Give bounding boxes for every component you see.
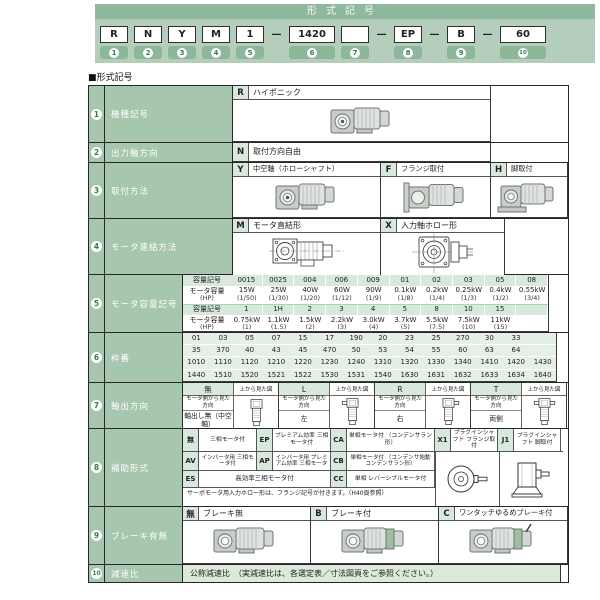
capacity-code: 4 — [358, 305, 390, 316]
capacity-code: 8 — [421, 305, 453, 316]
row-number-cell: 8 — [89, 429, 105, 506]
badge-number: 2 — [143, 48, 153, 58]
code-box: 1420 — [289, 26, 335, 43]
table-row-7: 7 軸出方向 無 上から見た図 モータ側から見た方向 軸出し無（中空軸） L 上… — [89, 382, 568, 428]
badge-number: 3 — [177, 48, 187, 58]
code-box-slot-10: 60 10 — [500, 26, 546, 59]
code-box: 1 — [236, 26, 264, 43]
row-label: 軸出方向 — [105, 383, 183, 428]
table-row-2: 2 出力軸方向 N 取付方向自由 — [89, 142, 568, 162]
shaft-direction-option-R: R 上から見た図 モータ側から見た方向 右 — [375, 383, 471, 428]
capacity-value: 0.25kW(1/3) — [453, 286, 485, 304]
capacity-value — [516, 323, 548, 326]
page-title: 形式記号 — [95, 4, 595, 19]
top-view-drawing — [233, 396, 278, 429]
top-view-label: 上から見た図 — [425, 383, 470, 396]
capacity-code: 02 — [421, 275, 453, 286]
capacity-code-row: 容量記号11H234581015 — [183, 304, 548, 316]
row-number-cell: 2 — [89, 143, 105, 162]
motor-side-view-label: モータ側から見た方向 — [375, 396, 425, 411]
aux-description: プレミアム効率 三相モータ付 — [273, 429, 331, 451]
row-content: 無 上から見た図 モータ側から見た方向 軸出し無（中空軸） L 上から見た図 モ… — [183, 383, 568, 428]
frame-number: 07 — [263, 333, 290, 344]
option-box: Y 中空軸（ホローシャフト） — [233, 163, 381, 218]
code-cell: R — [233, 86, 249, 99]
code-cell: 無 — [183, 507, 199, 520]
option-box: X 入力軸ホロー形 — [381, 219, 505, 274]
aux-code: CC — [331, 471, 347, 487]
frame-number: 35 — [183, 345, 210, 356]
capacity-code: 1H — [263, 305, 295, 316]
frame-number: 1634 — [503, 370, 530, 381]
row-number-badge: 6 — [91, 352, 102, 363]
dash-glyph: — — [428, 26, 441, 43]
frame-number: 1531 — [343, 370, 370, 381]
table-row-10: 10 減速比 公称減速比 （実減速比は、各選定表／寸法図頁をご参照ください。） — [89, 564, 568, 582]
row-label: 機種記号 — [105, 86, 233, 142]
table-row-4: 4 モータ連結方法 M モータ直結形 X 入力軸ホロー形 — [89, 218, 568, 274]
capacity-value: 3.7kW(5) — [390, 315, 422, 333]
shaft-direction-table: 無 上から見た図 モータ側から見た方向 軸出し無（中空軸） L 上から見た図 モ… — [183, 383, 567, 428]
row-number-badge: 10 — [91, 568, 102, 579]
top-view-drawing — [329, 396, 374, 428]
code-cell: B — [311, 507, 327, 520]
direction-value: 左 — [279, 411, 329, 428]
code-number-badge: 3 — [168, 46, 196, 59]
option-box: B ブレーキ付 — [311, 507, 439, 564]
capacity-value: 7.5kW(10) — [453, 315, 485, 333]
aux-line-1: 無三相モータ付EPプレミアム効率 三相モータ付CA単相モータ付 （コンデンサラン… — [183, 429, 563, 452]
code-description: ブレーキ無 — [199, 507, 247, 520]
aux-line-2: AVインバータ用 三相モータ付APインバータ用 プレミアム効率 三相モータCB単… — [183, 452, 435, 471]
code-description: フランジ取付 — [397, 163, 448, 176]
frame-number: 25 — [423, 333, 450, 344]
row-content: N 取付方向自由 — [233, 143, 568, 162]
badge-number: 1 — [109, 48, 119, 58]
motor-capacity-table: 容量記号001500250040060090102030508モータ容量(HP)… — [183, 275, 549, 332]
table-row-8: 8 補助形式 無三相モータ付EPプレミアム効率 三相モータ付CA単相モータ付 （… — [89, 428, 568, 506]
frame-number: 1220 — [290, 357, 317, 368]
aux-line-3: ES高効率三相モータ付CC単相 レバーシブルモータ付 — [183, 471, 435, 488]
frame-number: 1420 — [503, 357, 530, 368]
direction-value: 右 — [375, 411, 425, 428]
frame-number-row: 3537040434547050535455606364 — [183, 344, 556, 356]
row-label: 出力軸方向 — [105, 143, 233, 162]
gearmotor-photo — [233, 177, 380, 217]
table-row-6: 6 枠番 01030507151719020232527030333537040… — [89, 332, 568, 382]
aux-code: X1 — [435, 429, 451, 451]
code-number-badge: 1 — [100, 46, 128, 59]
aux-code: CB — [331, 452, 347, 470]
row-content: 0103050715171902023252703033353704043454… — [183, 333, 568, 382]
frame-number: 43 — [263, 345, 290, 356]
badge-number: 4 — [211, 48, 221, 58]
code-separator: — — [428, 26, 441, 43]
frame-number: 1210 — [263, 357, 290, 368]
code-separator: — — [481, 26, 494, 43]
code-cell: H — [491, 163, 507, 176]
aux-left-block: AVインバータ用 三相モータ付APインバータ用 プレミアム効率 三相モータCB単… — [183, 452, 435, 506]
capacity-code: 009 — [358, 275, 390, 286]
code-description: 脚取付 — [507, 163, 537, 176]
frame-number: 30 — [476, 333, 503, 344]
aux-code: J1 — [498, 429, 514, 451]
option-box: 無 ブレーキ無 — [183, 507, 311, 564]
capacity-code: 1 — [231, 305, 263, 316]
frame-number — [529, 333, 556, 344]
reduction-ratio-note: 公称減速比 （実減速比は、各選定表／寸法図頁をご参照ください。） — [183, 565, 561, 582]
top-view-drawing — [521, 396, 566, 428]
plug-in-shaft-flange-drawing — [435, 452, 499, 506]
code-box-slot-6: 1420 6 — [289, 26, 335, 59]
code-description: 入力軸ホロー形 — [397, 219, 461, 232]
frame-number: 33 — [503, 333, 530, 344]
code-number-badge: 10 — [500, 46, 546, 59]
frame-number: 1631 — [423, 370, 450, 381]
frame-number: 1520 — [236, 370, 263, 381]
capacity-value: 11kW(15) — [485, 315, 517, 333]
option-box: C ワンタッチゆるめブレーキ付 — [439, 507, 568, 564]
motor-side-view-label: モータ側から見た方向 — [183, 396, 233, 411]
row-number-badge: 8 — [91, 462, 102, 473]
capacity-value-header: モータ容量(HP) — [183, 286, 231, 303]
code-cell: M — [233, 219, 249, 232]
frame-number: 53 — [369, 345, 396, 356]
capacity-code-header: 容量記号 — [183, 275, 231, 286]
gearmotor-line-drawing — [233, 233, 380, 277]
option-header: Y 中空軸（ホローシャフト） — [233, 163, 380, 177]
frame-number: 1521 — [263, 370, 290, 381]
badge-number: 8 — [403, 48, 413, 58]
frame-number: 50 — [343, 345, 370, 356]
row-number-cell: 7 — [89, 383, 105, 428]
frame-number: 1010 — [183, 357, 210, 368]
frame-number: 1522 — [290, 370, 317, 381]
frame-number: 64 — [503, 345, 530, 356]
code-box-slot-8: EP 8 — [394, 26, 422, 59]
badge-number: 9 — [456, 48, 466, 58]
frame-number: 15 — [290, 333, 317, 344]
motor-side-view-label: モータ側から見た方向 — [279, 396, 329, 411]
frame-number: 1340 — [449, 357, 476, 368]
code-box: B — [447, 26, 475, 43]
option-header: C ワンタッチゆるめブレーキ付 — [439, 507, 567, 521]
capacity-value-row: モータ容量(HP)15W(1/50)25W(1/30)40W(1/20)60W(… — [183, 286, 548, 304]
frame-number-row: 1440151015201521152215301531154016301631… — [183, 369, 556, 381]
capacity-code-row: 容量記号001500250040060090102030508 — [183, 275, 548, 286]
aux-description: 単相モータ付 （コンデンサ始動コンデンサラン形） — [347, 452, 435, 470]
capacity-value: 0.4kW(1/2) — [485, 286, 517, 304]
option-header: N 取付方向自由 — [233, 143, 490, 161]
row-content: 無 ブレーキ無 B ブレーキ付 C ワンタッチゆるめブレーキ付 — [183, 507, 568, 564]
option-header: 無 ブレーキ無 — [183, 507, 310, 521]
code-number-badge: 6 — [289, 46, 335, 59]
row-number-badge: 3 — [91, 185, 102, 196]
frame-number: 1440 — [183, 370, 210, 381]
code-box-slot-2: N 2 — [134, 26, 162, 59]
aux-description: インバータ用 三相モータ付 — [199, 452, 257, 470]
frame-number: 1633 — [476, 370, 503, 381]
aux-region: AVインバータ用 三相モータ付APインバータ用 プレミアム効率 三相モータCB単… — [183, 452, 563, 506]
frame-number: 1230 — [316, 357, 343, 368]
code-box: M — [202, 26, 230, 43]
row-number-cell: 4 — [89, 219, 105, 274]
code-separator: — — [375, 26, 388, 43]
frame-number: 60 — [449, 345, 476, 356]
gearmotor-line-drawing — [381, 233, 504, 277]
option-header: X 入力軸ホロー形 — [381, 219, 504, 233]
capacity-value-row: モータ容量(HP)0.75kW(1)1.1kW(1.5)1.5kW(2)2.2k… — [183, 315, 548, 333]
capacity-code: 0025 — [263, 275, 295, 286]
direction-code: T — [471, 383, 521, 396]
top-view-label: 上から見た図 — [329, 383, 374, 396]
capacity-code: 004 — [294, 275, 326, 286]
code-box-slot-4: M 4 — [202, 26, 230, 59]
table-row-5: 5 モータ容量記号 容量記号00150025004006009010203050… — [89, 274, 568, 332]
code-cell: C — [439, 507, 455, 520]
option-box: R ハイポニック — [233, 86, 491, 142]
direction-value: 軸出し無（中空軸） — [183, 411, 233, 429]
aux-description: 単相 レバーシブルモータ付 — [347, 471, 435, 487]
capacity-code: 10 — [453, 305, 485, 316]
frame-number: 45 — [290, 345, 317, 356]
row-number-cell: 1 — [89, 86, 105, 142]
aux-description: 単相モータ付 （コンデンサラン形） — [347, 429, 435, 451]
shaft-direction-option-T: T 上から見た図 モータ側から見た方向 両側 — [471, 383, 567, 428]
code-description: ワンタッチゆるめブレーキ付 — [455, 507, 556, 520]
gearmotor-photo — [183, 521, 310, 563]
row-content: 容量記号001500250040060090102030508モータ容量(HP)… — [183, 275, 568, 332]
dash-glyph: — — [481, 26, 494, 43]
frame-number: 54 — [396, 345, 423, 356]
capacity-code: 01 — [390, 275, 422, 286]
option-header: H 脚取付 — [491, 163, 567, 177]
code-description: 中空軸（ホローシャフト） — [249, 163, 343, 176]
direction-code: 無 — [183, 383, 233, 396]
capacity-value: 0.2kW(1/4) — [421, 286, 453, 304]
code-description: ハイポニック — [249, 86, 305, 99]
frame-number: 1630 — [396, 370, 423, 381]
code-box-slot-3: Y 3 — [168, 26, 196, 59]
frame-number: 1240 — [343, 357, 370, 368]
dash-glyph: — — [375, 26, 388, 43]
gearmotor-photo — [491, 177, 567, 217]
badge-number: 7 — [350, 48, 360, 58]
code-number-badge: 8 — [394, 46, 422, 59]
badge-number: 10 — [518, 48, 528, 58]
option-box: H 脚取付 — [491, 163, 568, 218]
option-header: F フランジ取付 — [381, 163, 490, 177]
row-number-cell: 3 — [89, 163, 105, 218]
frame-number: 1410 — [476, 357, 503, 368]
frame-number: 1510 — [210, 370, 237, 381]
direction-value: 両側 — [471, 411, 521, 428]
capacity-code: 0015 — [231, 275, 263, 286]
direction-code: R — [375, 383, 425, 396]
frame-number-row: 1010111011201210122012301240131013201330… — [183, 356, 556, 368]
frame-number-row: 0103050715171902023252703033 — [183, 333, 556, 344]
code-separator: — — [270, 26, 283, 43]
frame-number: 63 — [476, 345, 503, 356]
plug-in-shaft-foot-drawing — [499, 452, 563, 506]
motor-side-view-label: モータ側から見た方向 — [471, 396, 521, 411]
code-cell: X — [381, 219, 397, 232]
capacity-code: 05 — [485, 275, 517, 286]
row-label: ブレーキ有無 — [105, 507, 183, 564]
code-description: モータ直結形 — [249, 219, 305, 232]
model-code-table: 1 機種記号 R ハイポニック 2 出力軸方向 N — [88, 85, 569, 583]
row-content: 公称減速比 （実減速比は、各選定表／寸法図頁をご参照ください。） — [183, 565, 568, 582]
code-box: 60 — [500, 26, 546, 43]
row-content: 無三相モータ付EPプレミアム効率 三相モータ付CA単相モータ付 （コンデンサラン… — [183, 429, 568, 506]
option-header: M モータ直結形 — [233, 219, 380, 233]
frame-number: 370 — [210, 345, 237, 356]
code-number-badge: 4 — [202, 46, 230, 59]
row-number-badge: 5 — [91, 298, 102, 309]
code-box: EP — [394, 26, 422, 43]
capacity-code — [516, 305, 548, 316]
capacity-code: 3 — [326, 305, 358, 316]
row-number-badge: 7 — [91, 400, 102, 411]
code-number-badge: 9 — [447, 46, 475, 59]
row-number-cell: 5 — [89, 275, 105, 332]
aux-image-block — [435, 452, 563, 506]
row-label: モータ連結方法 — [105, 219, 233, 274]
badge-number: 5 — [245, 48, 255, 58]
capacity-code: 08 — [516, 275, 548, 286]
aux-code: CA — [331, 429, 347, 451]
code-cell: N — [233, 143, 249, 161]
option-header: B ブレーキ付 — [311, 507, 438, 521]
frame-number: 05 — [236, 333, 263, 344]
capacity-value-header: モータ容量(HP) — [183, 316, 231, 333]
code-cell: F — [381, 163, 397, 176]
gearmotor-photo — [381, 177, 490, 217]
gearmotor-photo — [311, 521, 438, 563]
aux-description: プラグインシャフト 脚取付 — [514, 429, 561, 451]
top-view-label: 上から見た図 — [233, 383, 278, 396]
capacity-value: 0.55kW(3/4) — [516, 286, 548, 304]
frame-number: 1530 — [316, 370, 343, 381]
aux-code: ES — [183, 471, 199, 487]
aux-code: AP — [257, 452, 273, 470]
code-description: 取付方向自由 — [249, 143, 305, 161]
model-code-boxes: R 1 N 2 Y 3 M 4 1 5 — 1420 6 7 — EP — [95, 19, 595, 63]
code-description: ブレーキ付 — [327, 507, 375, 520]
shaft-direction-option-無: 無 上から見た図 モータ側から見た方向 軸出し無（中空軸） — [183, 383, 279, 428]
capacity-value: 90W(1/9) — [358, 286, 390, 304]
capacity-value: 60W(1/12) — [326, 286, 358, 304]
frame-number: 270 — [449, 333, 476, 344]
aux-description: 三相モータ付 — [199, 429, 257, 451]
aux-note: サーボモータ用入力ホロー形は、フランジ記号が付きます。（H40頁参照） — [183, 488, 435, 500]
option-box: N 取付方向自由 — [233, 143, 491, 162]
code-box-slot-9: B 9 — [447, 26, 475, 59]
capacity-value: 40W(1/20) — [294, 286, 326, 304]
aux-code: 無 — [183, 429, 199, 451]
frame-number — [529, 345, 556, 356]
code-box: Y — [168, 26, 196, 43]
row-label: 補助形式 — [105, 429, 183, 506]
top-view-drawing — [425, 396, 470, 428]
option-header: R ハイポニック — [233, 86, 490, 100]
frame-number: 190 — [343, 333, 370, 344]
aux-description: 高効率三相モータ付 — [199, 471, 331, 487]
capacity-code: 03 — [453, 275, 485, 286]
row-number-badge: 1 — [91, 109, 102, 120]
frame-number: 40 — [236, 345, 263, 356]
aux-code: AV — [183, 452, 199, 470]
code-number-badge: 7 — [341, 46, 369, 59]
capacity-code-header: 容量記号 — [183, 305, 231, 316]
capacity-code: 15 — [485, 305, 517, 316]
row-number-cell: 6 — [89, 333, 105, 382]
capacity-value: 3.0kW(4) — [358, 315, 390, 333]
table-row-1: 1 機種記号 R ハイポニック — [89, 86, 568, 142]
frame-number: 55 — [423, 345, 450, 356]
code-box-slot-1: R 1 — [100, 26, 128, 59]
shaft-direction-option-L: L 上から見た図 モータ側から見た方向 左 — [279, 383, 375, 428]
capacity-code: 2 — [294, 305, 326, 316]
section-label: ■形式記号 — [88, 70, 600, 83]
row-label: 減速比 — [105, 565, 183, 582]
code-number-badge: 5 — [236, 46, 264, 59]
code-cell: Y — [233, 163, 249, 176]
frame-number: 1320 — [396, 357, 423, 368]
capacity-code: 006 — [326, 275, 358, 286]
code-box: R — [100, 26, 128, 43]
frame-number: 01 — [183, 333, 210, 344]
frame-number: 17 — [316, 333, 343, 344]
capacity-value: 25W(1/30) — [263, 286, 295, 304]
capacity-value: 15W(1/50) — [231, 286, 263, 304]
row-content: R ハイポニック — [233, 86, 568, 142]
capacity-value: 0.1kW(1/8) — [390, 286, 422, 304]
table-row-9: 9 ブレーキ有無 無 ブレーキ無 B ブレーキ付 — [89, 506, 568, 564]
row-content: Y 中空軸（ホローシャフト） F フランジ取付 H 脚取付 — [233, 163, 568, 218]
frame-number: 1120 — [236, 357, 263, 368]
frame-number: 1540 — [369, 370, 396, 381]
row-content: M モータ直結形 X 入力軸ホロー形 — [233, 219, 568, 274]
row-label: 枠番 — [105, 333, 183, 382]
code-box-slot-7: 7 — [341, 26, 369, 59]
frame-number: 1110 — [210, 357, 237, 368]
frame-number: 1632 — [449, 370, 476, 381]
frame-number: 1330 — [423, 357, 450, 368]
option-box: M モータ直結形 — [233, 219, 381, 274]
frame-number: 1430 — [529, 357, 556, 368]
dash-glyph: — — [270, 26, 283, 43]
frame-number: 03 — [210, 333, 237, 344]
catalog-page: 形式記号 R 1 N 2 Y 3 M 4 1 5 — 1420 6 7 — [0, 0, 600, 600]
row-number-badge: 4 — [91, 241, 102, 252]
frame-number: 23 — [396, 333, 423, 344]
aux-description: インバータ用 プレミアム効率 三相モータ — [273, 452, 331, 470]
option-box: F フランジ取付 — [381, 163, 491, 218]
frame-number: 1310 — [369, 357, 396, 368]
capacity-value: 1.1kW(1.5) — [263, 315, 295, 333]
table-row-3: 3 取付方法 Y 中空軸（ホローシャフト） F フランジ取付 — [89, 162, 568, 218]
capacity-value: 1.5kW(2) — [294, 315, 326, 333]
code-box-slot-5: 1 5 — [236, 26, 264, 59]
row-number-badge: 9 — [91, 530, 102, 541]
capacity-value: 0.75kW(1) — [231, 315, 263, 333]
frame-number-table: 0103050715171902023252703033353704043454… — [183, 333, 557, 382]
code-box — [341, 26, 369, 43]
capacity-value: 5.5kW(7.5) — [421, 315, 453, 333]
row-number-cell: 10 — [89, 565, 105, 582]
top-view-label: 上から見た図 — [521, 383, 566, 396]
